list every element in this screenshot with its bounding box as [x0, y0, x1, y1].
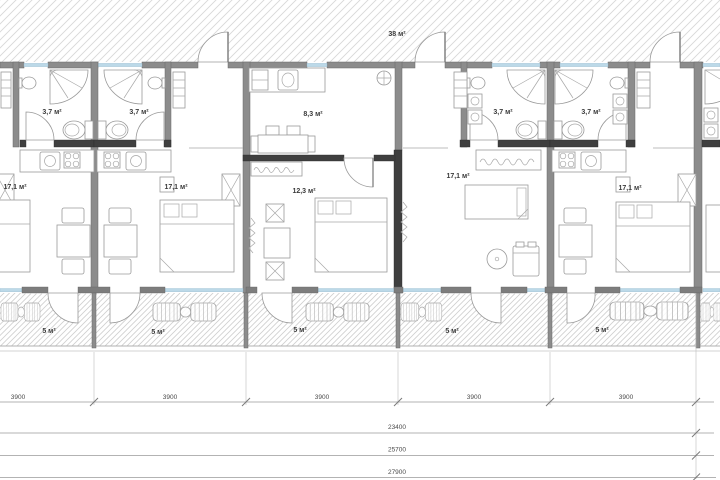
module-dimension: 3900 — [619, 394, 634, 401]
unit-5: 3,7 м² — [550, 62, 696, 274]
sink-icon — [148, 77, 165, 89]
door-arc — [26, 112, 54, 140]
kitchenette-icon — [552, 150, 626, 172]
wardrobe-icon — [476, 150, 541, 170]
wardrobe-icon — [251, 162, 302, 176]
living-room-area-label: 17,1 м² — [164, 184, 188, 191]
dining-table-icon — [559, 208, 592, 274]
balcony-area-label: 5 м² — [445, 328, 459, 335]
chair-icon — [287, 126, 300, 135]
unit-4: 3,7 м² — [401, 62, 550, 276]
balcony-area-label: 5 м² — [595, 327, 609, 334]
module-dimension: 3900 — [467, 394, 482, 401]
duct-icon — [637, 72, 650, 108]
interior-wall — [243, 155, 344, 161]
shower-icon — [705, 70, 720, 104]
south-wall — [0, 287, 720, 293]
shower-icon — [50, 70, 88, 104]
unit-2: 3,7 м² — [94, 62, 243, 274]
north-wall — [0, 62, 720, 68]
floor-plan-drawing: 38 м² — [0, 0, 720, 480]
terrace-area: 38 м² — [0, 0, 720, 62]
door-arc — [136, 112, 164, 140]
total-dimension: 27900 — [388, 469, 406, 476]
bed-icon — [315, 198, 387, 272]
table-icon — [264, 204, 290, 280]
dining-table-icon — [104, 208, 137, 274]
duct-icon — [1, 72, 11, 108]
unit-1: 3,7 м² — [0, 62, 94, 274]
living-room-2: 17,1 м² — [97, 150, 240, 274]
bathroom-1: 3,7 м² — [13, 62, 94, 147]
chair-icon — [109, 208, 131, 223]
shower-icon — [555, 70, 593, 104]
washer-icon — [704, 108, 718, 138]
total-dimension: 25700 — [388, 447, 406, 454]
wardrobe-icon — [678, 174, 696, 206]
living-room-area-label: 17,1 м² — [3, 184, 27, 191]
unit-3: 8,3 м² — [243, 68, 395, 280]
duct-icon — [454, 72, 467, 108]
module-dimension: 3900 — [163, 394, 178, 401]
floor-plan-canvas: 38 м² — [0, 0, 720, 480]
bathroom-2: 3,7 м² — [94, 62, 171, 147]
bedroom-area-label: 12,3 м² — [292, 188, 316, 195]
terrace-area-label: 38 м² — [388, 31, 406, 38]
shower-icon — [104, 70, 142, 104]
ceiling-light-icon — [377, 71, 391, 85]
balcony-area-label: 5 м² — [151, 329, 165, 336]
toilet-icon — [516, 121, 546, 139]
interior-wall — [702, 140, 720, 147]
bed-icon — [706, 205, 720, 272]
chair-icon — [266, 126, 279, 135]
dining-table-icon — [251, 126, 315, 153]
kitchen-counter-icon — [249, 68, 325, 92]
bed-icon — [160, 200, 234, 272]
bed-icon — [616, 202, 690, 272]
sink-icon — [19, 77, 36, 89]
dining-table-icon — [57, 208, 90, 274]
washer-icon — [468, 94, 482, 124]
shower-icon — [507, 70, 545, 104]
living-room-1: 17,1 м² — [0, 150, 94, 274]
kitchenette-icon — [20, 150, 94, 172]
living-room-area-label: 17,1 м² — [618, 185, 642, 192]
interior-wall — [374, 155, 395, 161]
bathroom-area-label: 3,7 м² — [493, 109, 513, 116]
chair-icon — [62, 259, 84, 274]
sink-icon — [467, 77, 485, 89]
chair-icon — [109, 259, 131, 274]
toilet-icon — [63, 121, 93, 139]
kitchenette-icon — [97, 150, 171, 172]
kitchen-3: 8,3 м² — [249, 68, 391, 153]
terrace-hatch — [0, 0, 720, 62]
balconies: 5 м² 5 м² 5 м² 5 м² 5 м² — [0, 293, 720, 351]
duct-icon — [173, 72, 185, 108]
bathroom-area-label: 3,7 м² — [581, 109, 601, 116]
living-room-5: 17,1 м² — [552, 150, 696, 274]
bathroom-area-label: 3,7 м² — [129, 109, 149, 116]
living-room-4: 17,1 м² — [401, 150, 541, 276]
module-dimension: 3900 — [11, 394, 26, 401]
bathroom-area-label: 3,7 м² — [42, 109, 62, 116]
armchair-icon — [513, 242, 539, 276]
bedroom-door-icon — [344, 158, 373, 187]
unit-6 — [702, 70, 720, 272]
chair-icon — [62, 208, 84, 223]
bed-icon — [0, 200, 30, 272]
bathroom-4: 3,7 м² — [460, 62, 550, 147]
kitchen-area-label: 8,3 м² — [303, 111, 323, 118]
living-room-area-label: 17,1 м² — [446, 173, 470, 180]
module-dimension: 3900 — [315, 394, 330, 401]
toilet-icon — [554, 121, 584, 139]
chair-icon — [564, 208, 586, 223]
balcony-area-label: 5 м² — [42, 328, 56, 335]
chair-icon — [564, 259, 586, 274]
toilet-icon — [98, 121, 128, 139]
balcony-area-label: 5 м² — [293, 327, 307, 334]
bathroom-5: 3,7 м² — [550, 62, 635, 147]
stool-icon — [487, 249, 507, 269]
sink-icon — [610, 77, 628, 89]
washer-icon — [613, 94, 627, 124]
bed-icon — [465, 185, 528, 219]
total-dimension: 23400 — [388, 424, 406, 431]
